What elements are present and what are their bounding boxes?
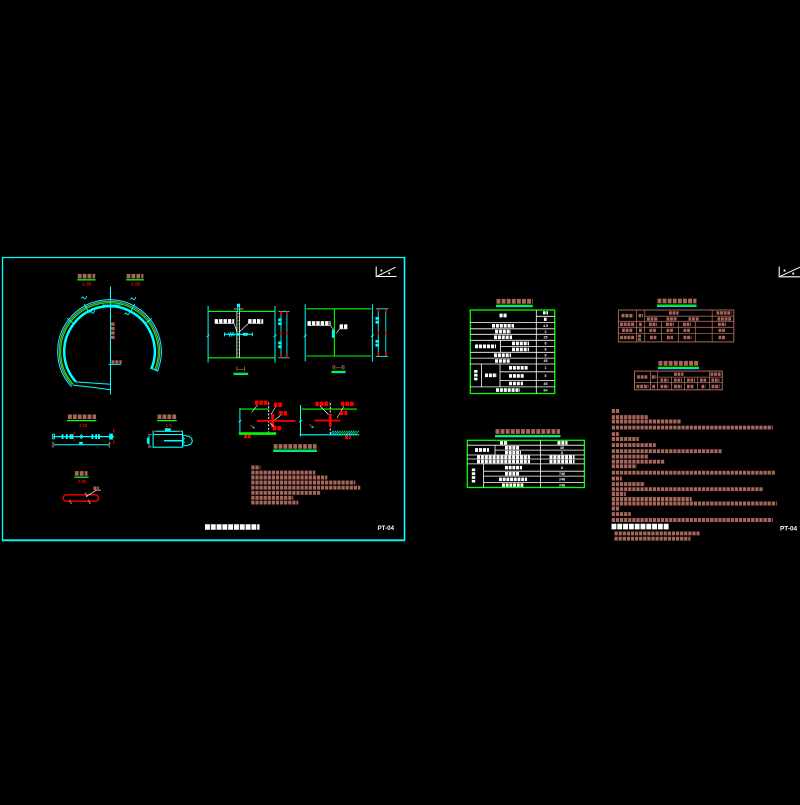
svg-text:45: 45 [544, 359, 548, 363]
svg-text:PT-04: PT-04 [378, 525, 395, 532]
svg-text:3: 3 [545, 330, 547, 334]
svg-text:8: 8 [561, 466, 563, 470]
svg-text:25: 25 [544, 336, 548, 340]
svg-text:248: 248 [559, 483, 565, 487]
svg-text:I—I: I—I [236, 367, 246, 373]
svg-text:4.5: 4.5 [543, 324, 548, 328]
svg-text:1:50: 1:50 [131, 282, 141, 287]
svg-text:1:20: 1:20 [78, 479, 87, 484]
svg-text:248: 248 [559, 478, 565, 482]
svg-text:1:10: 1:10 [79, 423, 88, 428]
svg-text:746: 746 [559, 472, 565, 476]
svg-text:45: 45 [544, 382, 548, 386]
svg-text:1:5: 1:5 [166, 423, 173, 428]
svg-text:PT-04: PT-04 [780, 526, 797, 533]
svg-text:1: 1 [545, 366, 547, 370]
svg-text:8: 8 [545, 353, 547, 357]
svg-text:8: 8 [561, 451, 563, 455]
svg-text:8: 8 [545, 348, 547, 352]
svg-text:5: 5 [545, 374, 547, 378]
svg-text:64: 64 [544, 388, 548, 392]
svg-text:II—II: II—II [332, 365, 345, 371]
svg-text:8: 8 [545, 342, 547, 346]
svg-text:45: 45 [560, 446, 564, 450]
svg-text:1:50: 1:50 [82, 282, 92, 287]
